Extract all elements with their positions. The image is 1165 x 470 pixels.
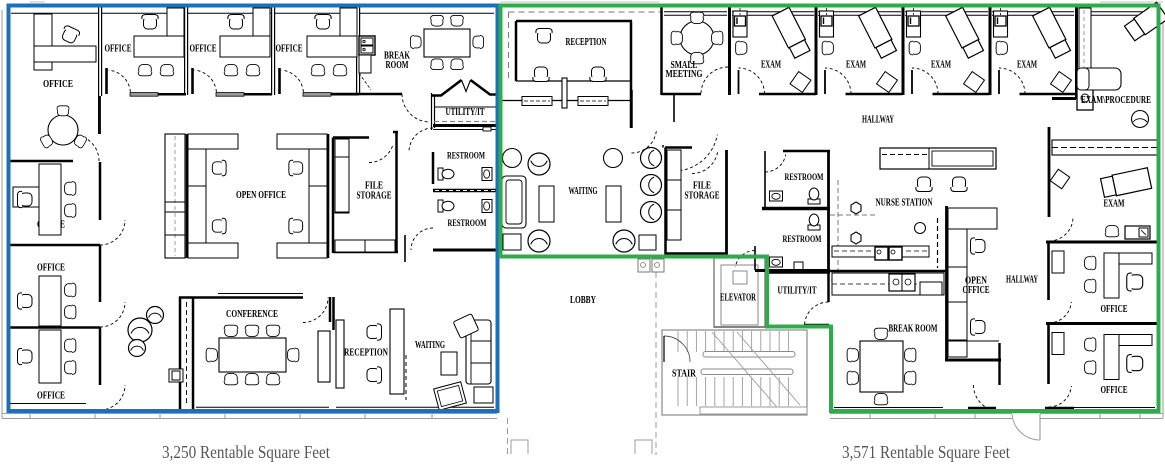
svg-text:ELEVATOR: ELEVATOR (720, 292, 757, 303)
svg-text:RECEPTION: RECEPTION (566, 37, 608, 48)
svg-text:RESTROOM: RESTROOM (783, 235, 822, 245)
svg-text:OFFICE: OFFICE (1101, 385, 1128, 396)
svg-text:STAIR: STAIR (672, 368, 697, 379)
svg-text:MEETING: MEETING (666, 69, 703, 80)
svg-text:UTILITY/IT: UTILITY/IT (446, 107, 485, 118)
svg-text:OFFICE: OFFICE (276, 43, 303, 54)
svg-text:RECEPTION: RECEPTION (344, 347, 389, 358)
svg-text:CONFERENCE: CONFERENCE (226, 309, 278, 320)
svg-text:STORAGE: STORAGE (357, 190, 392, 201)
svg-text:EXAM: EXAM (1017, 59, 1037, 70)
svg-text:HALLWAY: HALLWAY (862, 114, 894, 125)
svg-text:EXAM: EXAM (761, 59, 781, 70)
svg-text:RESTROOM: RESTROOM (447, 152, 485, 162)
svg-text:EXAM: EXAM (931, 59, 951, 70)
svg-text:EXAM: EXAM (1104, 198, 1125, 209)
svg-text:NURSE STATION: NURSE STATION (876, 197, 934, 208)
svg-text:EXAM\PROCEDURE: EXAM\PROCEDURE (1081, 95, 1151, 106)
svg-text:3,571 Rentable Square Feet: 3,571 Rentable Square Feet (842, 442, 1010, 462)
svg-text:BREAK ROOM: BREAK ROOM (889, 323, 938, 334)
svg-text:LOBBY: LOBBY (570, 295, 597, 306)
svg-text:OFFICE: OFFICE (43, 79, 73, 90)
svg-text:OPEN OFFICE: OPEN OFFICE (236, 190, 286, 201)
svg-text:OFFICE: OFFICE (1101, 304, 1128, 315)
svg-text:OFFICE: OFFICE (963, 285, 990, 296)
svg-text:OFFICE: OFFICE (37, 390, 65, 401)
svg-text:HALLWAY: HALLWAY (1006, 274, 1038, 285)
svg-text:OFFICE: OFFICE (190, 43, 217, 54)
svg-text:UTILITY/IT: UTILITY/IT (778, 285, 817, 296)
svg-text:RESTROOM: RESTROOM (785, 173, 824, 183)
svg-text:WAITING: WAITING (415, 340, 445, 351)
svg-text:OFFICE: OFFICE (37, 262, 65, 273)
svg-text:RESTROOM: RESTROOM (448, 219, 487, 229)
svg-text:EXAM: EXAM (846, 59, 866, 70)
svg-text:3,250 Rentable Square Feet: 3,250 Rentable Square Feet (162, 442, 330, 462)
svg-text:ROOM: ROOM (386, 60, 409, 71)
svg-text:OFFICE: OFFICE (105, 43, 132, 54)
svg-text:STORAGE: STORAGE (685, 190, 720, 201)
svg-text:WAITING: WAITING (569, 186, 598, 197)
